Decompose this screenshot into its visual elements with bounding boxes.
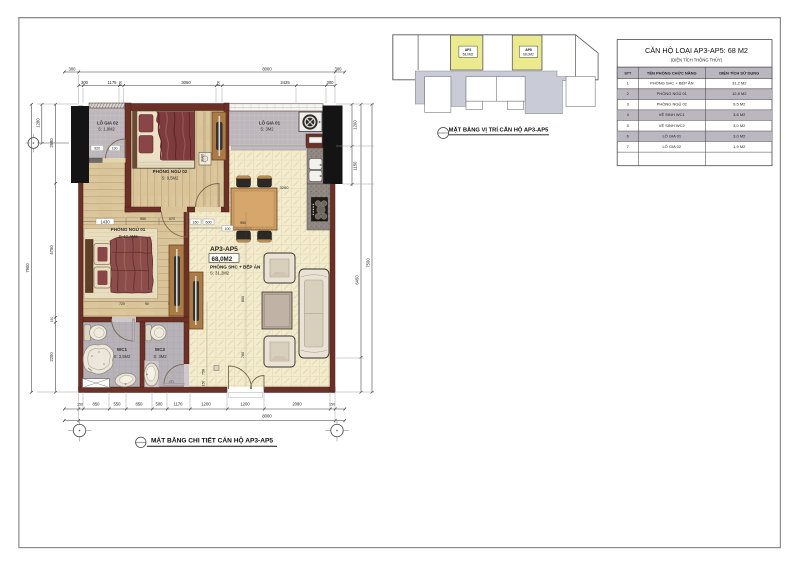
svg-text:4750: 4750 — [49, 245, 54, 255]
svg-text:550: 550 — [114, 402, 122, 407]
svg-text:950: 950 — [240, 221, 246, 225]
svg-text:1280: 1280 — [36, 118, 41, 128]
svg-text:MẶT BẰNG VỊ TRÍ CĂN HỘ AP3-AP5: MẶT BẰNG VỊ TRÍ CĂN HỘ AP3-AP5 — [449, 126, 549, 134]
svg-text:TÊN PHÒNG CHỨC NĂNG: TÊN PHÒNG CHỨC NĂNG — [647, 71, 697, 76]
svg-text:600: 600 — [241, 296, 245, 302]
svg-text:760: 760 — [241, 352, 245, 358]
svg-text:8000: 8000 — [262, 67, 272, 72]
svg-text:150: 150 — [119, 81, 123, 87]
svg-text:150: 150 — [77, 403, 83, 407]
svg-text:100: 100 — [225, 227, 231, 231]
svg-text:PHÒNG NGỦ 02: PHÒNG NGỦ 02 — [153, 167, 188, 174]
svg-text:920: 920 — [94, 147, 100, 151]
svg-text:2425: 2425 — [280, 80, 290, 85]
svg-text:7900: 7900 — [25, 263, 30, 273]
svg-text:1150: 1150 — [353, 161, 358, 171]
svg-text:S: 3,5M2: S: 3,5M2 — [114, 354, 131, 359]
svg-text:500: 500 — [156, 402, 164, 407]
svg-text:(DIỆN TÍCH THÔNG THỦY): (DIỆN TÍCH THÔNG THỦY) — [671, 58, 723, 63]
svg-text:850: 850 — [136, 402, 144, 407]
svg-text:130: 130 — [112, 147, 118, 151]
svg-text:DIỆN TÍCH SỬ DỤNG: DIỆN TÍCH SỬ DỤNG — [719, 71, 759, 76]
svg-text:LÔ GIA 02: LÔ GIA 02 — [97, 121, 119, 126]
svg-text:LÔ GIA 02: LÔ GIA 02 — [662, 144, 681, 149]
svg-text:CĂN HỘ LOẠI AP3-AP5: 68 M2: CĂN HỘ LOẠI AP3-AP5: 68 M2 — [645, 46, 748, 55]
svg-text:300: 300 — [81, 80, 89, 85]
svg-text:720: 720 — [119, 302, 125, 306]
svg-text:68,0M2: 68,0M2 — [523, 53, 534, 57]
svg-text:750: 750 — [202, 369, 206, 375]
svg-text:1430: 1430 — [100, 219, 110, 224]
svg-text:1200: 1200 — [201, 402, 211, 407]
svg-text:68,0M2: 68,0M2 — [463, 53, 474, 57]
svg-text:3200: 3200 — [280, 185, 290, 190]
svg-text:600: 600 — [206, 221, 212, 225]
svg-text:9,5 M2: 9,5 M2 — [733, 102, 746, 107]
svg-text:1,9 M2: 1,9 M2 — [733, 144, 746, 149]
svg-text:LÔ GIA 01: LÔ GIA 01 — [662, 133, 681, 138]
svg-text:300: 300 — [335, 67, 343, 72]
svg-text:PHÒNG NGỦ 01: PHÒNG NGỦ 01 — [111, 225, 146, 232]
svg-text:1200: 1200 — [240, 402, 250, 407]
svg-text:1200: 1200 — [353, 120, 358, 130]
svg-text:AP3: AP3 — [465, 48, 472, 52]
svg-text:S: 9,5M2: S: 9,5M2 — [162, 176, 179, 181]
svg-text:3,6 M2: 3,6 M2 — [733, 112, 746, 117]
svg-text:200: 200 — [217, 81, 221, 87]
svg-text:950: 950 — [140, 217, 146, 221]
svg-text:S: 12,4M2: S: 12,4M2 — [118, 234, 138, 239]
svg-text:160: 160 — [193, 221, 199, 225]
svg-text:850: 850 — [93, 402, 101, 407]
svg-text:PHÒNG SHC + BẾP ĂN: PHÒNG SHC + BẾP ĂN — [650, 81, 693, 86]
svg-text:3,0 M2: 3,0 M2 — [733, 133, 746, 138]
svg-text:68,0M2: 68,0M2 — [212, 256, 233, 263]
svg-text:STT: STT — [624, 71, 632, 75]
svg-text:WC2: WC2 — [155, 347, 166, 352]
svg-text:2200: 2200 — [49, 352, 54, 362]
svg-text:S: 3M2: S: 3M2 — [153, 354, 167, 359]
svg-text:S: 1,9M2: S: 1,9M2 — [98, 127, 115, 132]
svg-text:1170: 1170 — [173, 402, 183, 407]
svg-text:AP5: AP5 — [525, 48, 532, 52]
svg-text:300: 300 — [69, 67, 77, 72]
svg-text:90: 90 — [145, 302, 149, 306]
svg-text:WC1: WC1 — [117, 347, 128, 352]
svg-text:7500: 7500 — [366, 258, 371, 268]
svg-text:150: 150 — [202, 381, 206, 387]
svg-text:6450: 6450 — [355, 275, 360, 285]
svg-text:3,0 M2: 3,0 M2 — [733, 123, 746, 128]
svg-text:670: 670 — [169, 217, 175, 221]
svg-text:VỆ SINH WC1: VỆ SINH WC1 — [659, 112, 686, 117]
svg-text:S: 31,2M2: S: 31,2M2 — [210, 271, 230, 276]
svg-text:12,8 M2: 12,8 M2 — [732, 91, 747, 96]
svg-text:31,2 M2: 31,2 M2 — [732, 81, 747, 86]
svg-text:PHÒNG NGỦ 01: PHÒNG NGỦ 01 — [657, 91, 688, 96]
svg-text:S: 3M2: S: 3M2 — [260, 127, 274, 132]
svg-text:8000: 8000 — [262, 414, 272, 419]
svg-text:2580: 2580 — [49, 138, 54, 148]
svg-text:300: 300 — [327, 80, 335, 85]
svg-text:PHÒNG NGỦ 02: PHÒNG NGỦ 02 — [657, 102, 688, 107]
svg-text:2080: 2080 — [292, 402, 302, 407]
svg-text:PHÒNG SHC + BẾP ĂN: PHÒNG SHC + BẾP ĂN — [210, 263, 261, 270]
svg-text:150: 150 — [50, 317, 54, 323]
svg-text:3050: 3050 — [181, 80, 191, 85]
svg-text:1175: 1175 — [107, 80, 117, 85]
svg-text:150: 150 — [329, 403, 335, 407]
svg-text:AP3-AP5: AP3-AP5 — [210, 246, 238, 253]
svg-text:3100: 3100 — [201, 154, 205, 162]
svg-text:LÔ GIA 01: LÔ GIA 01 — [259, 121, 281, 126]
svg-text:VỆ SINH WC2: VỆ SINH WC2 — [659, 123, 686, 128]
